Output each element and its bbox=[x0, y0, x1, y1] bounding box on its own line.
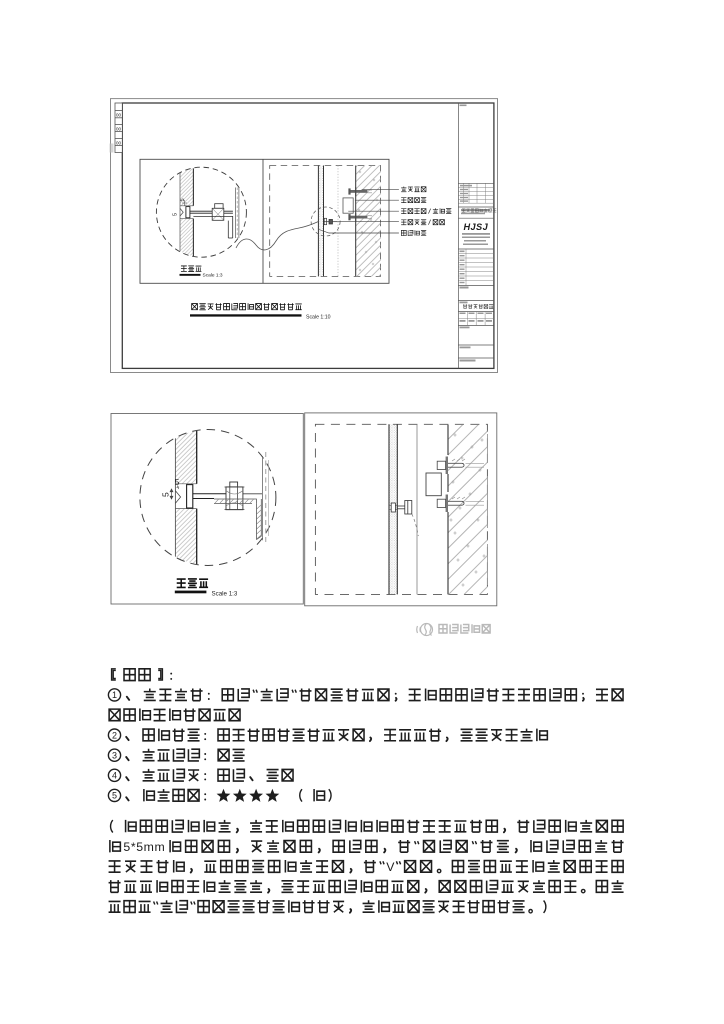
svg-text:5: 5 bbox=[175, 477, 180, 487]
svg-text:00: 00 bbox=[116, 126, 122, 131]
svg-text:5: 5 bbox=[112, 791, 117, 801]
svg-text:1: 1 bbox=[112, 690, 117, 700]
svg-text:5: 5 bbox=[180, 198, 186, 201]
svg-text:Scale 1:3: Scale 1:3 bbox=[212, 590, 238, 597]
svg-text:V: V bbox=[386, 860, 395, 874]
svg-text:Scale 1:3: Scale 1:3 bbox=[203, 273, 223, 279]
svg-text:2: 2 bbox=[112, 730, 117, 740]
svg-text:5*5mm: 5*5mm bbox=[123, 840, 165, 854]
svg-text:00: 00 bbox=[116, 112, 122, 117]
svg-text:5: 5 bbox=[173, 213, 179, 216]
svg-text:3: 3 bbox=[112, 750, 117, 760]
svg-text:00: 00 bbox=[116, 140, 122, 145]
svg-text:HJSJ: HJSJ bbox=[464, 222, 489, 232]
svg-text:Scale 1:10: Scale 1:10 bbox=[306, 314, 331, 320]
svg-text:4: 4 bbox=[112, 771, 117, 781]
svg-text:5: 5 bbox=[161, 492, 171, 497]
